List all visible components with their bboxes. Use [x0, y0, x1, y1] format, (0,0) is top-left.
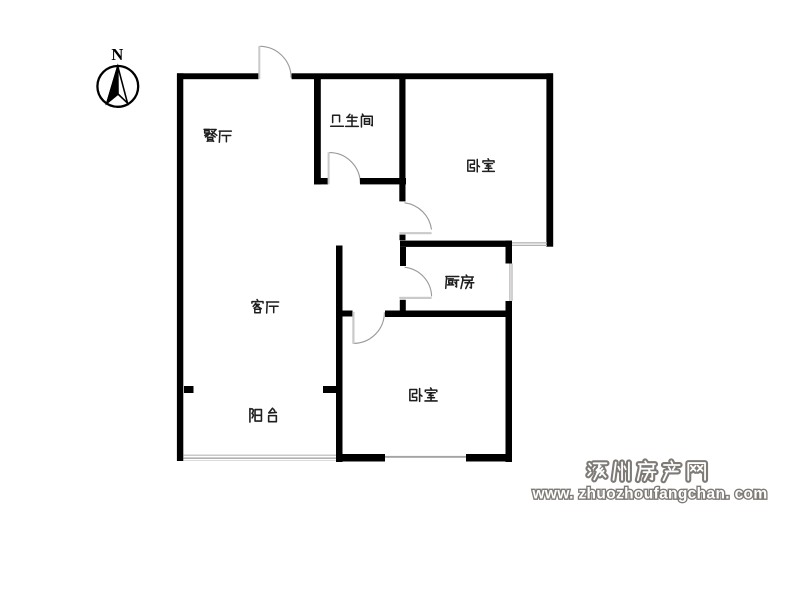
svg-text:www. zhuozhoufangchan. com: www. zhuozhoufangchan. com — [532, 486, 768, 503]
svg-text:N: N — [111, 45, 123, 64]
